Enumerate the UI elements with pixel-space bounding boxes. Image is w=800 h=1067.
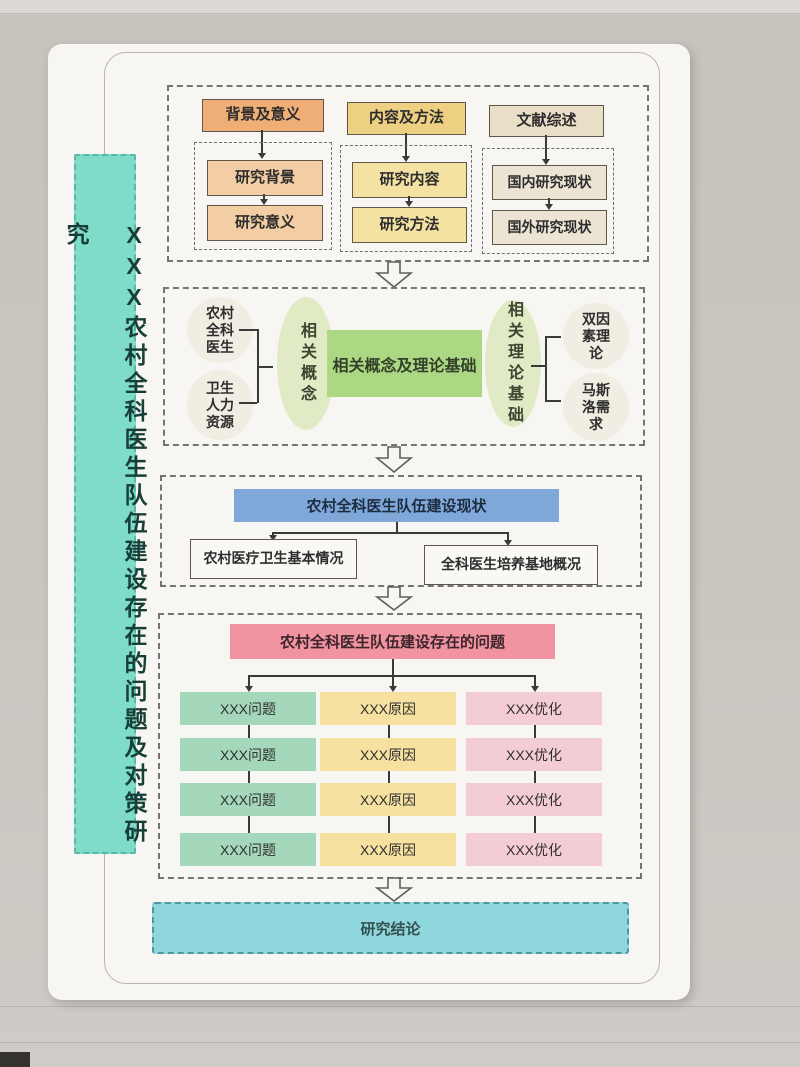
- theory-hub-basis: 相关理论基础: [485, 300, 541, 427]
- down-arrow-icon: [507, 532, 509, 541]
- intro-box-research-method: 研究方法: [352, 207, 467, 243]
- cause-item: XXX原因: [320, 783, 456, 816]
- optimization-item: XXX优化: [466, 738, 602, 771]
- photo-corner-shadow: [0, 1052, 30, 1067]
- photo-background: XXX农村全科医生队伍建设存在的问题及对策研究 背景及意义 研究背景 研究意义 …: [0, 0, 800, 1067]
- thesis-title: XXX农村全科医生队伍建设存在的问题及对策研究: [47, 156, 163, 852]
- bracket-line: [545, 336, 561, 338]
- connector-line: [248, 771, 250, 783]
- bracket-line: [239, 329, 257, 331]
- optimization-item: XXX优化: [466, 783, 602, 816]
- status-box-training-base: 全科医生培养基地概况: [424, 545, 598, 585]
- intro-box-research-background: 研究背景: [207, 160, 323, 196]
- problems-header-bar: 农村全科医生队伍建设存在的问题: [230, 624, 555, 659]
- connector-line: [534, 771, 536, 783]
- problem-item: XXX问题: [180, 783, 316, 816]
- intro-header-literature: 文献综述: [489, 105, 604, 137]
- connector-line: [388, 816, 390, 833]
- desk-line: [0, 1006, 800, 1007]
- problem-item: XXX问题: [180, 692, 316, 725]
- intro-box-research-content: 研究内容: [352, 162, 467, 198]
- intro-box-foreign-status: 国外研究现状: [492, 210, 607, 245]
- cause-item: XXX原因: [320, 833, 456, 866]
- connector-line: [396, 522, 398, 532]
- theory-right-item-two-factor: 双因素理论: [563, 303, 629, 369]
- connector-line: [248, 725, 250, 738]
- connector-line: [392, 659, 394, 675]
- block-arrow-down: [374, 446, 414, 478]
- theory-left-item-hr: 卫生人力资源: [187, 370, 253, 440]
- section-status: 农村全科医生队伍建设现状 农村医疗卫生基本情况 全科医生培养基地概况: [160, 475, 642, 587]
- optimization-item: XXX优化: [466, 692, 602, 725]
- cause-item: XXX原因: [320, 738, 456, 771]
- intro-header-content: 内容及方法: [347, 102, 466, 135]
- connector-line: [272, 532, 508, 534]
- cause-item: XXX原因: [320, 692, 456, 725]
- desk-line-2: [0, 1042, 800, 1043]
- down-arrow-icon: [263, 194, 265, 200]
- down-arrow-icon: [272, 532, 274, 536]
- intro-box-domestic-status: 国内研究现状: [492, 165, 607, 200]
- connector-line: [248, 816, 250, 833]
- section-problems: 农村全科医生队伍建设存在的问题 XXX问题 XXX问题 XXX问题 XXX问题 …: [158, 613, 642, 879]
- down-arrow-icon: [548, 198, 550, 205]
- down-arrow-icon: [534, 675, 536, 687]
- status-box-rural-medical: 农村医疗卫生基本情况: [190, 539, 357, 579]
- problem-item: XXX问题: [180, 738, 316, 771]
- bracket-line: [545, 400, 561, 402]
- conclusion-bar: 研究结论: [152, 902, 629, 954]
- theory-center-title: 相关概念及理论基础: [327, 330, 482, 397]
- down-arrow-icon: [408, 196, 410, 202]
- section-theory: 农村全科医生 卫生人力资源 相关概念 相关概念及理论基础 相关理论基础: [163, 287, 645, 446]
- status-header-bar: 农村全科医生队伍建设现状: [234, 489, 559, 522]
- section-intro: 背景及意义 研究背景 研究意义 内容及方法 研究内容 研究方法 文献综述 国内研…: [167, 85, 649, 262]
- optimization-item: XXX优化: [466, 833, 602, 866]
- down-arrow-icon: [248, 675, 250, 687]
- connector-line: [388, 771, 390, 783]
- bracket-line: [531, 365, 545, 367]
- intro-header-background: 背景及意义: [202, 99, 324, 132]
- problem-item: XXX问题: [180, 833, 316, 866]
- down-arrow-icon: [392, 675, 394, 687]
- bracket-line: [257, 366, 273, 368]
- connector-line: [534, 725, 536, 738]
- bracket-line: [545, 336, 547, 402]
- connector-line: [534, 816, 536, 833]
- background-seam-line: [0, 13, 800, 14]
- theory-right-item-maslow: 马斯洛需求: [563, 373, 629, 441]
- intro-box-research-significance: 研究意义: [207, 205, 323, 241]
- document-page: XXX农村全科医生队伍建设存在的问题及对策研究 背景及意义 研究背景 研究意义 …: [48, 44, 690, 1000]
- connector-line: [388, 725, 390, 738]
- bracket-line: [239, 402, 257, 404]
- block-arrow-down: [374, 586, 414, 616]
- thesis-title-banner: XXX农村全科医生队伍建设存在的问题及对策研究: [74, 154, 136, 854]
